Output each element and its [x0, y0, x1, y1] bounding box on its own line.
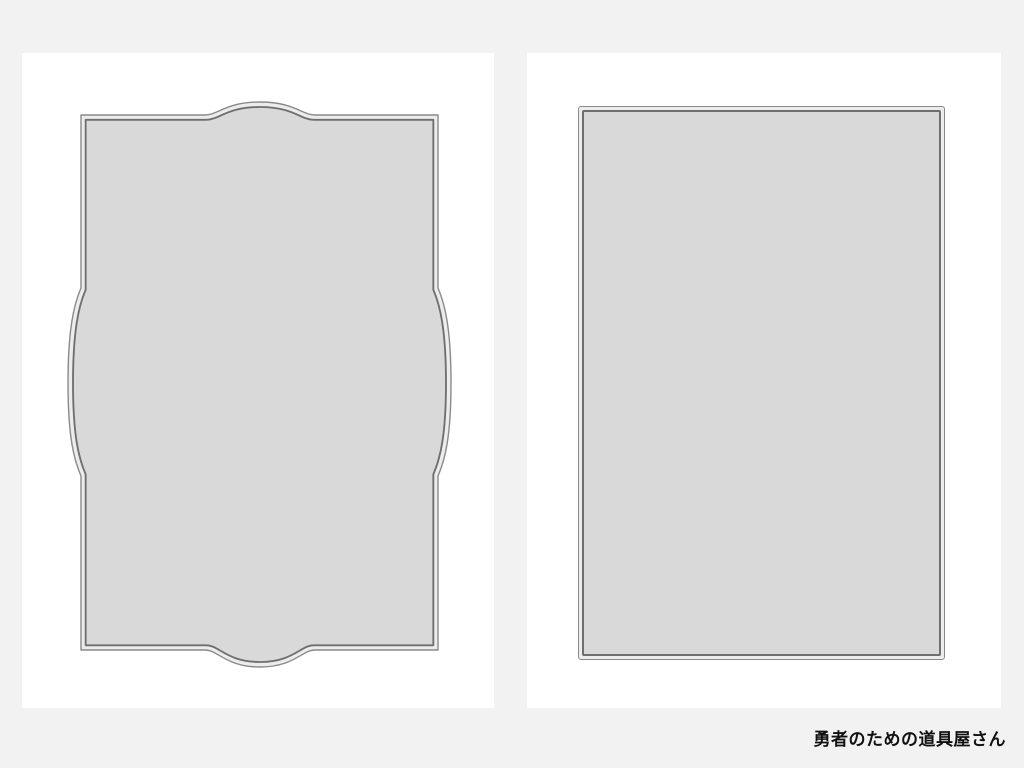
- page-rect-frame: [527, 53, 1001, 708]
- rect-frame-outer-line: [578, 106, 945, 660]
- ornate-frame-graphic: [22, 53, 494, 708]
- rect-frame-inner-line: [582, 110, 941, 656]
- template-sheet: 勇者のための道具屋さん: [0, 0, 1024, 768]
- ornate-frame-inner-line: [73, 107, 446, 662]
- page-ornate-frame: [22, 53, 494, 708]
- shop-name-caption: 勇者のための道具屋さん: [814, 725, 1007, 750]
